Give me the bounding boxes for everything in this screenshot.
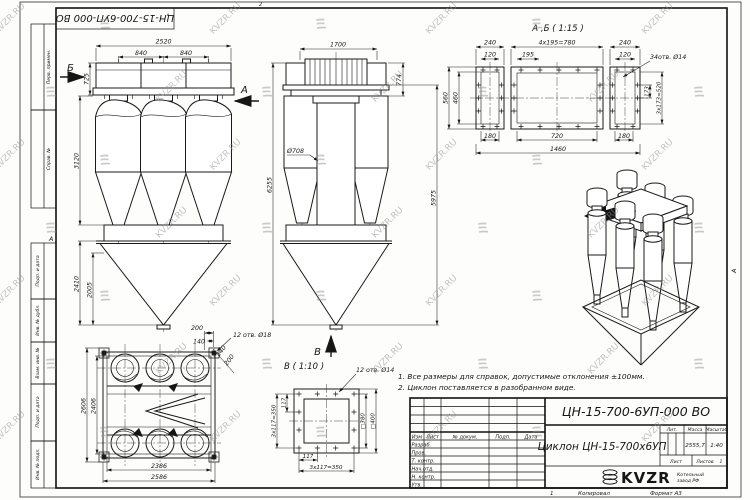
fold-mark-top: 2 [259, 2, 262, 8]
note-line-2: 2. Циклон поставляется в разобранном вид… [398, 383, 576, 392]
detail-ab-view: А ,Б ( 1:15 ) 240 4x195=780 240 120 195 [443, 24, 687, 155]
dim: 2520 [155, 39, 171, 46]
col-header: № докум. [452, 435, 478, 441]
format-label: Формат А3 [650, 491, 682, 497]
dim: 3120 [74, 153, 81, 169]
section-label-v: В [314, 347, 321, 358]
dim: 840 [180, 50, 192, 57]
margin-field-label: Подп. и дата [35, 255, 41, 286]
row-label: Пров. [412, 451, 427, 457]
bottom-sheet-num: 1 [550, 491, 554, 497]
row-label: Н. контр. [412, 475, 436, 481]
dim: 560 [443, 92, 450, 104]
scale-value: 1:40 [710, 443, 723, 449]
logo-text: KVZR [621, 469, 671, 487]
dim: 117 [282, 397, 288, 408]
fold-mark-left: А [48, 236, 53, 243]
top-stamp: ЦН-15-700-6УП-000 ВО [56, 8, 175, 29]
logo-subtitle: Котельный [677, 472, 704, 478]
dim: 200 [223, 353, 236, 367]
drawing-sheet: 2 А А Перв. примен. Справ. № Подп. и дат… [0, 0, 750, 500]
dim: 180 [618, 133, 630, 140]
spring-icon [603, 470, 617, 484]
margin-field-label: Инв. № подл. [35, 448, 41, 480]
dim: 120 [484, 52, 496, 59]
margin-field-label: Перв. примен. [46, 50, 52, 85]
dim: 117 [303, 454, 314, 460]
col-header: Подп. [495, 435, 510, 441]
lit-label: Лит. [666, 427, 678, 433]
row-label: Утв. [412, 483, 423, 489]
notes: 1. Все размеры для справок, допустимые о… [398, 372, 645, 392]
dim: 140 [215, 344, 228, 358]
dim: 3x117=350 [310, 465, 343, 471]
isometric-view [583, 170, 699, 365]
dim: 140 [193, 339, 205, 346]
cad-drawing: 2 А А Перв. примен. Справ. № Подп. и дат… [0, 0, 750, 500]
margin-field-label: Взам. инв. № [35, 347, 41, 378]
iso-cyclone [643, 214, 663, 330]
holes-note: 12 отв. Ø18 [233, 331, 271, 339]
cyclone-1 [96, 95, 142, 225]
note-line-1: 1. Все размеры для справок, допустимые о… [398, 372, 645, 381]
top-stamp-code: ЦН-15-700-6УП-000 ВО [56, 12, 175, 23]
fold-mark-right: А [731, 269, 738, 274]
dim: Ø708 [286, 147, 304, 155]
col-header: Лист [425, 435, 440, 441]
dim: 720 [551, 133, 563, 140]
holes-note: 12 отв. Ø14 [356, 366, 394, 374]
company-logo: KVZR Котельный завод РФ [603, 469, 704, 487]
dim: 120 [619, 52, 631, 59]
dim: □400 [371, 413, 377, 429]
sheets-label: Листов [695, 459, 713, 465]
cyclone-3 [186, 95, 232, 225]
dim: 6255 [267, 177, 274, 193]
dim: 240 [619, 40, 631, 47]
mass-value: 2555,7 [685, 443, 705, 449]
dim: 3x117=350 [272, 404, 278, 437]
margin-field-label: Подп. и дата [35, 396, 41, 427]
col-header: Изм [412, 435, 422, 441]
scale-label: Масштаб [706, 427, 728, 433]
iso-cyclone [587, 188, 607, 304]
dim: 1460 [550, 146, 566, 153]
copied-label: Копировал [578, 491, 610, 497]
doc-number: ЦН-15-700-6УП-000 ВО [562, 404, 710, 419]
dim: 2586 [151, 474, 167, 481]
section-label-a: А [240, 85, 248, 96]
plan-view: 2606 2406 2386 2586 200 140 12 отв. Ø18 … [81, 325, 272, 483]
margin-fields: Перв. примен. Справ. № Подп. и дата Инв.… [31, 24, 56, 488]
margin-field-label: Инв. № дубл. [35, 304, 41, 335]
cyclone-2 [141, 95, 187, 225]
mass-label: Масса [688, 427, 703, 433]
detail-ab-title: А ,Б ( 1:15 ) [531, 24, 583, 34]
product-name: Циклон ЦН-15-700х6УП [538, 441, 667, 453]
dim: □380 [361, 413, 367, 429]
iso-cyclone [615, 201, 635, 317]
dim: 240 [484, 40, 496, 47]
detail-v-view: В ( 1:10 ) 12 отв. Ø14 117 3x117=350 117… [272, 362, 395, 473]
holes-note: 34отв. Ø14 [650, 53, 686, 61]
dim: 774 [396, 74, 403, 86]
dim: 1700 [330, 42, 346, 49]
dim: 4x195=780 [538, 40, 575, 47]
sheets-value: 1 [720, 459, 723, 465]
front-view: 2520 840 840 725 3120 2410 2005 Б А [60, 39, 259, 333]
margin-field-label: Справ. № [46, 148, 52, 171]
section-label-b: Б [67, 63, 74, 74]
dim: 200 [191, 325, 203, 332]
dim: 840 [135, 50, 147, 57]
dim: 2606 [81, 398, 88, 414]
title-block: Изм Лист № докум. Подп. Дата Разраб. Про… [410, 398, 728, 497]
dim: 2406 [91, 398, 98, 414]
row-label: Нач.отд. [412, 467, 434, 473]
dim: 195 [522, 52, 534, 59]
detail-v-title: В ( 1:10 ) [284, 362, 324, 372]
col-header: Дата [524, 435, 538, 441]
row-label: Разраб. [412, 443, 432, 449]
dim: 725 [84, 73, 91, 85]
dim: 5975 [431, 190, 438, 206]
sheet-label: Лист [669, 459, 682, 465]
row-label: Т. контр. [412, 459, 435, 465]
side-view: 1700 774 Ø708 6255 5975 В [267, 42, 440, 359]
dim: 2005 [87, 282, 94, 298]
dim: 2386 [151, 463, 167, 470]
dim: 173 [645, 86, 651, 97]
dim: 2410 [74, 276, 81, 292]
dim: 180 [484, 133, 496, 140]
dim: 460 [453, 92, 460, 104]
logo-subtitle: завод РФ [677, 478, 699, 484]
dim: 3x173=520 [657, 81, 663, 114]
